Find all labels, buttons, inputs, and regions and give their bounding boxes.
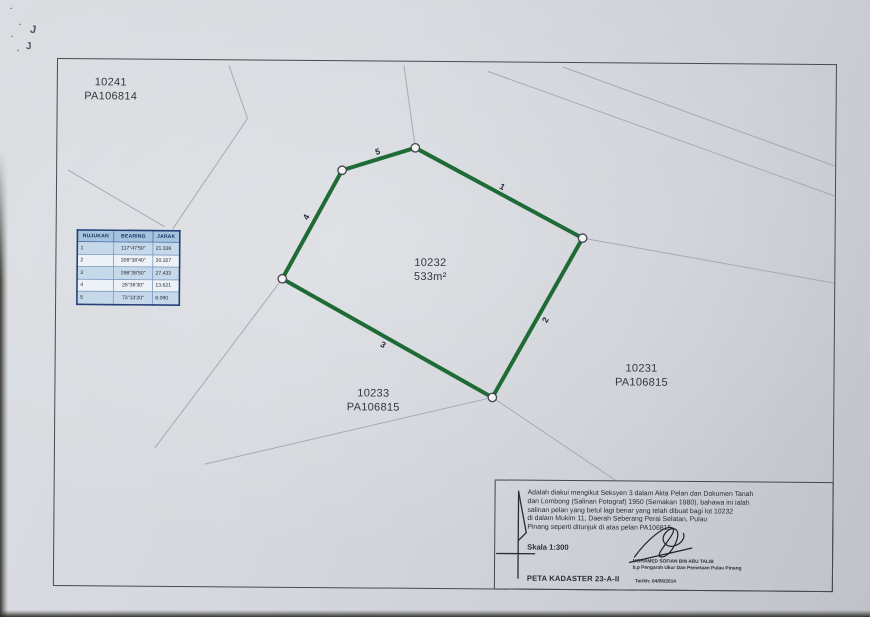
- certificate-paragraph: Adalah diakui mengikut Seksyen 3 dalam A…: [527, 488, 791, 533]
- photo-edge-bottom: [0, 610, 870, 617]
- photo-paper: · · J · · J: [0, 0, 870, 617]
- pen-j-mark: J: [29, 24, 37, 37]
- lot-number: 10232: [385, 256, 475, 271]
- parcel-label-10233: 10233 PA106815: [328, 386, 418, 415]
- boundary-vertex-right: [578, 234, 586, 242]
- boundary-vertex-bottom: [488, 393, 496, 401]
- table-row: 3 298°38'50" 27.433: [77, 266, 179, 279]
- signatory-name: MOHAMED SOFIAN BIN ABU TALIB: [633, 559, 714, 564]
- pen-dot-mark: ·: [11, 32, 14, 41]
- cell-rujukan: 2: [77, 254, 113, 267]
- plan-number: PA106815: [596, 375, 686, 390]
- reference-table-wrapper: RUJUKAN BEARING JARAK 1 117°47'50" 21.33…: [76, 229, 181, 305]
- cell-jarak: 20.327: [153, 255, 180, 268]
- road-line: [562, 67, 836, 166]
- plan-number: PA106814: [66, 89, 156, 104]
- header-rujukan: RUJUKAN: [77, 230, 113, 242]
- parcel-label-10241: 10241 PA106814: [66, 75, 156, 104]
- cell-bearing: 117°47'50": [114, 242, 153, 255]
- table-row: 1 117°47'50" 21.336: [77, 242, 179, 255]
- map-frame: 10241 PA106814 10232 533m² 10231 PA10681…: [53, 58, 837, 592]
- table-header-row: RUJUKAN BEARING JARAK: [77, 230, 179, 242]
- signatory-title: b.p Pengarah Ukur Dan Pemetaan Pulau Pin…: [633, 565, 742, 571]
- adjacent-line: [68, 170, 165, 227]
- header-bearing: BEARING: [114, 230, 153, 242]
- cell-bearing: 28°36'30": [113, 279, 152, 292]
- cell-bearing: 73°13'20": [113, 291, 152, 304]
- boundary-vertex-left: [278, 275, 286, 283]
- parcel-label-10231: 10231 PA106815: [596, 361, 686, 390]
- cell-jarak: 13.621: [153, 279, 180, 292]
- pen-dot-mark: ·: [19, 20, 22, 29]
- pen-j-mark: J: [26, 41, 32, 52]
- table-row: 5 73°13'20" 8.090: [77, 291, 179, 305]
- cell-bearing: 208°38'40": [114, 254, 153, 267]
- adjacent-line: [582, 238, 834, 283]
- scale-label: Skala 1:300: [527, 543, 568, 552]
- table-row: 2 208°38'40" 20.327: [77, 254, 179, 267]
- cell-jarak: 21.336: [153, 242, 180, 255]
- boundary-vertex-top-left: [338, 166, 346, 174]
- adjacent-line: [229, 65, 248, 118]
- certificate-content: Adalah diakui mengikut Seksyen 3 dalam A…: [495, 480, 835, 591]
- survey-reference-table: RUJUKAN BEARING JARAK 1 117°47'50" 21.33…: [76, 229, 181, 305]
- date-label: Tarikh: 04/06/2014: [635, 579, 676, 584]
- cell-jarak: 27.433: [153, 267, 180, 280]
- certificate-box: Adalah diakui mengikut Seksyen 3 dalam A…: [494, 479, 834, 592]
- certificate-line: Pinang seperti ditunjuk di atas pelan PA…: [527, 522, 791, 533]
- photo-edge-left: [0, 150, 8, 617]
- parcel-label-10232-subject: 10232 533m²: [385, 256, 475, 285]
- cell-rujukan: 5: [77, 291, 113, 304]
- pen-dot-mark: ·: [10, 4, 13, 13]
- lot-number: 10231: [597, 361, 687, 376]
- cell-rujukan: 1: [77, 242, 113, 255]
- sheet-number: PETA KADASTER 23-A-II: [527, 574, 620, 584]
- cell-bearing: 298°38'50": [113, 267, 152, 280]
- cell-jarak: 8.090: [152, 292, 179, 305]
- lot-area: 533m²: [385, 270, 475, 285]
- adjacent-line: [492, 397, 617, 480]
- road-line: [487, 71, 836, 196]
- lot-number: 10241: [66, 75, 156, 90]
- pen-dot-mark: ·: [17, 46, 20, 55]
- plan-number: PA106815: [328, 400, 418, 415]
- cell-rujukan: 4: [77, 279, 113, 292]
- header-jarak: JARAK: [153, 231, 180, 243]
- adjacent-line: [173, 118, 248, 230]
- lot-number: 10233: [328, 386, 418, 401]
- table-row: 4 28°36'30" 13.621: [77, 279, 179, 292]
- boundary-vertex-top: [411, 144, 419, 152]
- cell-rujukan: 3: [77, 266, 113, 279]
- adjacent-line: [403, 66, 416, 148]
